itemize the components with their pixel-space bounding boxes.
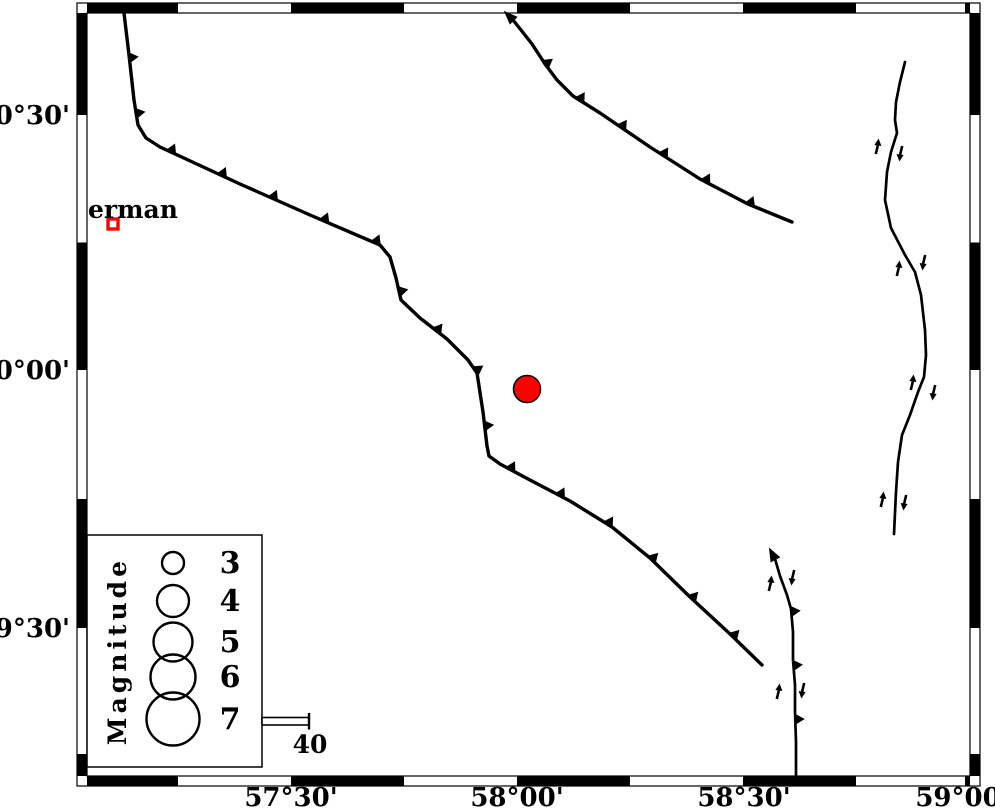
lat-label-30-30: 30°30' xyxy=(0,101,70,131)
frame-band-left xyxy=(77,499,87,628)
magnitude-value-5: 5 xyxy=(220,625,241,660)
frame-band-top xyxy=(743,3,856,13)
scale-bar xyxy=(262,718,309,726)
lon-label-59-00: 59°00' xyxy=(915,783,995,810)
frame-band-top xyxy=(87,3,178,13)
magnitude-value-4: 4 xyxy=(220,584,241,619)
lon-label-58-30: 58°30' xyxy=(697,783,790,810)
epicenter-marker xyxy=(514,376,541,403)
frame-band-top xyxy=(965,3,970,13)
magnitude-value-7: 7 xyxy=(220,702,241,737)
frame-band-top xyxy=(291,3,404,13)
lat-label-29-30: 29°30' xyxy=(0,614,70,644)
frame-band-bottom xyxy=(87,776,178,786)
frame-band-right xyxy=(970,243,980,371)
scale-bar-label: 40 xyxy=(293,730,328,759)
seismicity-map: erman 30°30' 30°00' 29°30' 57°30' 58°00'… xyxy=(0,0,995,810)
frame-band-right xyxy=(970,499,980,628)
city-label-kerman: erman xyxy=(88,195,178,224)
lon-label-57-30: 57°30' xyxy=(244,783,337,810)
frame-band-right xyxy=(970,754,980,776)
frame-band-top xyxy=(517,3,630,13)
seismicity-map-figure: erman 30°30' 30°00' 29°30' 57°30' 58°00'… xyxy=(0,0,995,810)
frame-band-right xyxy=(970,13,980,115)
legend-title: Magnitude xyxy=(103,557,132,745)
lon-label-58-00: 58°00' xyxy=(470,783,563,810)
magnitude-value-6: 6 xyxy=(220,660,241,695)
lat-label-30-00: 30°00' xyxy=(0,356,70,386)
magnitude-value-3: 3 xyxy=(220,546,241,581)
frame-band-left xyxy=(77,13,87,115)
magnitude-legend: Magnitude 3 4 5 6 7 xyxy=(87,535,262,767)
frame-band-left xyxy=(77,754,87,776)
frame-band-left xyxy=(77,243,87,371)
